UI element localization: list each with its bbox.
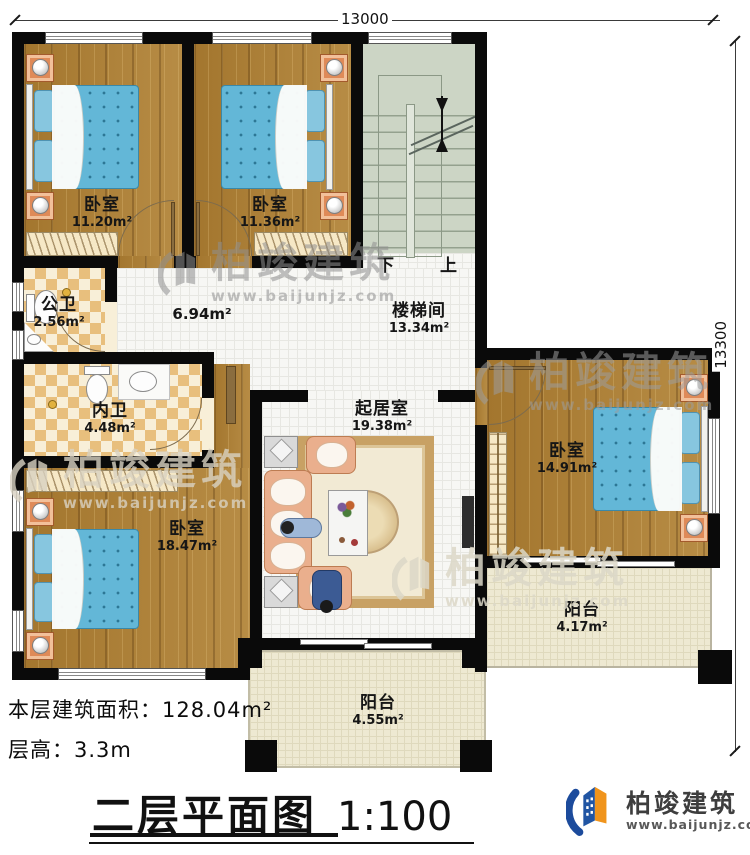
room-area: 6.94m²: [172, 306, 231, 323]
bed-sheet: [650, 407, 682, 511]
brand-text: 柏竣建筑 www.baijunjz.com: [626, 790, 750, 833]
door-opening: [475, 368, 487, 425]
coffee-table: [328, 490, 368, 556]
nightstand: [680, 514, 708, 542]
room-name: 阳台: [556, 601, 607, 621]
column: [462, 638, 486, 668]
bed: [26, 528, 140, 630]
room-label-bedroom1: 卧室 11.20m²: [72, 196, 132, 230]
room-area: 4.48m²: [84, 422, 135, 437]
column: [460, 740, 492, 772]
room-label-bedroom2: 卧室 11.36m²: [240, 196, 300, 230]
door-opening: [196, 256, 252, 268]
nightstand: [26, 192, 54, 220]
door-leaf: [489, 366, 546, 370]
floor-height-label: 层高：: [8, 738, 74, 762]
title-underline-thick: [90, 833, 338, 837]
wall: [12, 456, 214, 468]
sink-basin: [27, 334, 41, 345]
room-label-public-bath: 公卫 2.56m²: [33, 296, 84, 330]
nightstand: [320, 54, 348, 82]
column: [245, 740, 277, 772]
table-top-icon: [269, 438, 293, 462]
floor-plan-canvas: 下 上: [0, 0, 750, 855]
pillow: [305, 90, 325, 132]
room-area: 13.34m²: [389, 322, 449, 337]
room-area: 14.91m²: [537, 462, 597, 477]
lamp-icon: [686, 379, 703, 396]
sink-basin: [129, 371, 157, 392]
bed: [220, 84, 333, 190]
nightstand: [320, 192, 348, 220]
room-name: 卧室: [157, 520, 217, 540]
door-leaf: [171, 202, 175, 256]
room-label-bedroom3: 卧室 18.47m²: [157, 520, 217, 554]
nightstand: [26, 498, 54, 526]
bed: [26, 84, 140, 190]
lamp-icon: [326, 59, 343, 76]
tv: [462, 496, 474, 548]
wall: [438, 390, 475, 402]
room-label-inner-bath: 内卫 4.48m²: [84, 402, 135, 436]
column: [238, 638, 262, 668]
floor-area-line: 本层建筑面积：128.04m²: [8, 694, 272, 724]
floor-area-label: 本层建筑面积：: [8, 698, 162, 722]
floor-height-value: 3.3m: [74, 738, 132, 762]
brand-logo: 柏竣建筑 www.baijunjz.com: [566, 780, 750, 842]
sofa-cushion: [270, 542, 306, 570]
room-label-living: 起居室 19.38m²: [352, 400, 412, 434]
pillow: [34, 582, 54, 622]
window: [368, 32, 452, 44]
room-name: 阳台: [352, 694, 403, 714]
door-opening: [105, 302, 117, 352]
window: [12, 610, 24, 652]
window: [12, 330, 24, 360]
room-name: 卧室: [72, 196, 132, 216]
floor-area-value: 128.04m²: [162, 698, 272, 722]
pillow: [34, 140, 54, 182]
wall: [12, 256, 363, 268]
nightstand: [26, 632, 54, 660]
toilet-bowl: [86, 374, 108, 404]
room-area: 19.38m²: [352, 420, 412, 435]
side-table: [264, 576, 298, 608]
door-leaf: [226, 366, 236, 424]
bed-sheet: [52, 529, 84, 629]
wall: [475, 348, 720, 360]
nightstand: [680, 374, 708, 402]
sofa-cushion: [270, 478, 306, 506]
armchair-cushion: [316, 442, 348, 468]
armchair: [306, 436, 356, 474]
pillow: [34, 90, 54, 132]
room-name: 卧室: [537, 442, 597, 462]
pendant-lamp-icon: [48, 400, 57, 409]
window: [45, 32, 143, 44]
bed-sheet: [52, 85, 84, 189]
stair-stringer: [406, 104, 415, 258]
pillow: [680, 462, 700, 504]
window: [12, 490, 24, 532]
room-name: 公卫: [33, 296, 84, 316]
room-label-bedroom4: 卧室 14.91m²: [537, 442, 597, 476]
wall: [351, 44, 363, 268]
window: [12, 282, 24, 312]
room-name: 内卫: [84, 402, 135, 422]
wardrobe: [26, 232, 118, 256]
bed-sheet: [275, 85, 307, 189]
column: [698, 650, 732, 684]
sliding-door: [300, 639, 368, 645]
sliding-door: [364, 643, 432, 649]
brand-logo-icon: [566, 780, 618, 842]
headboard: [26, 528, 33, 630]
closet: [489, 432, 507, 556]
sliding-door: [597, 561, 675, 567]
wall: [250, 390, 262, 668]
pillow: [680, 412, 700, 454]
stair-arrow-up-icon: [436, 98, 448, 112]
pillow: [34, 534, 54, 574]
nightstand: [26, 54, 54, 82]
sliding-door: [523, 557, 601, 563]
person-head-icon: [281, 521, 294, 534]
headboard: [701, 406, 708, 512]
headboard: [26, 84, 33, 190]
lamp-icon: [32, 59, 49, 76]
room-label-balcony-right: 阳台 4.17m²: [556, 601, 607, 635]
door-leaf: [196, 202, 200, 256]
lamp-icon: [686, 519, 703, 536]
floor-height-line: 层高：3.3m: [8, 734, 132, 764]
window: [212, 32, 312, 44]
dimension-label-top: 13000: [338, 10, 392, 28]
wardrobe: [254, 232, 348, 256]
room-label-balcony-bottom: 阳台 4.55m²: [352, 694, 403, 728]
lamp-icon: [32, 637, 49, 654]
door-opening: [202, 398, 214, 450]
brand-name: 柏竣建筑: [626, 790, 750, 818]
brand-site: www.baijunjz.com: [626, 817, 750, 832]
side-table: [264, 436, 298, 468]
wall: [182, 44, 194, 268]
wall: [250, 390, 308, 402]
stair-down-label: 下: [377, 251, 394, 276]
room-label-stairwell: 楼梯间 13.34m²: [389, 302, 449, 336]
wardrobe: [26, 470, 178, 492]
room-area: 2.56m²: [33, 316, 84, 331]
window: [708, 418, 720, 514]
headboard: [326, 84, 333, 190]
door-opening: [118, 256, 174, 268]
room-area: 4.17m²: [556, 621, 607, 636]
wall: [12, 352, 214, 364]
table-item-icon: [339, 537, 345, 543]
stair-arrow-down-icon: [436, 138, 448, 152]
lamp-icon: [32, 197, 49, 214]
table-top-icon: [269, 578, 293, 602]
stair-up-label: 上: [440, 251, 457, 276]
title-underline-thin: [89, 842, 474, 844]
plan-scale: 1:100: [337, 794, 452, 840]
lamp-icon: [326, 197, 343, 214]
room-name: 起居室: [352, 400, 412, 420]
flower-vase-icon: [336, 500, 356, 518]
room-name: 楼梯间: [389, 302, 449, 322]
table-item-icon: [351, 539, 358, 546]
room-area: 18.47m²: [157, 540, 217, 555]
lamp-icon: [32, 503, 49, 520]
bed: [592, 406, 708, 512]
room-label-hall: 6.94m²: [172, 306, 231, 323]
room-area: 11.20m²: [72, 216, 132, 231]
dimension-line-right: [735, 40, 736, 752]
room-area: 11.36m²: [240, 216, 300, 231]
person-head-icon: [320, 600, 333, 613]
window: [58, 668, 206, 680]
pillow: [305, 140, 325, 182]
room-area: 4.55m²: [352, 714, 403, 729]
room-name: 卧室: [240, 196, 300, 216]
dimension-label-right: 13300: [712, 318, 730, 372]
